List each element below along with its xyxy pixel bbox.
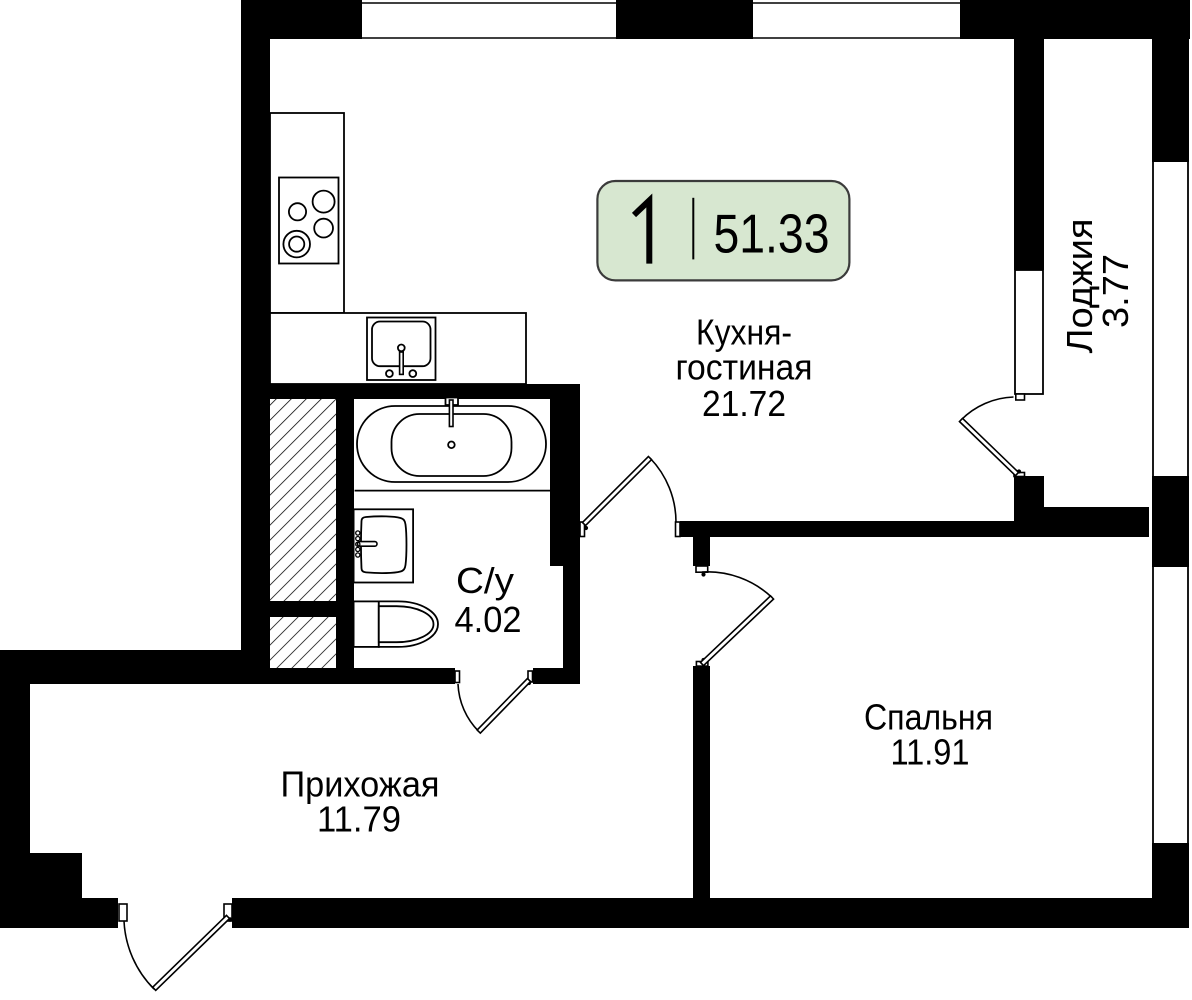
svg-text:гостиная: гостиная — [676, 347, 813, 388]
svg-text:11.79: 11.79 — [317, 799, 401, 840]
svg-text:11.91: 11.91 — [891, 732, 970, 773]
svg-text:51.33: 51.33 — [714, 202, 830, 264]
svg-text:Лоджия: Лоджия — [1059, 219, 1100, 354]
svg-text:4.02: 4.02 — [455, 599, 522, 640]
svg-text:3.77: 3.77 — [1095, 254, 1136, 328]
svg-text:С/у: С/у — [456, 560, 514, 601]
svg-text:21.72: 21.72 — [702, 383, 786, 424]
